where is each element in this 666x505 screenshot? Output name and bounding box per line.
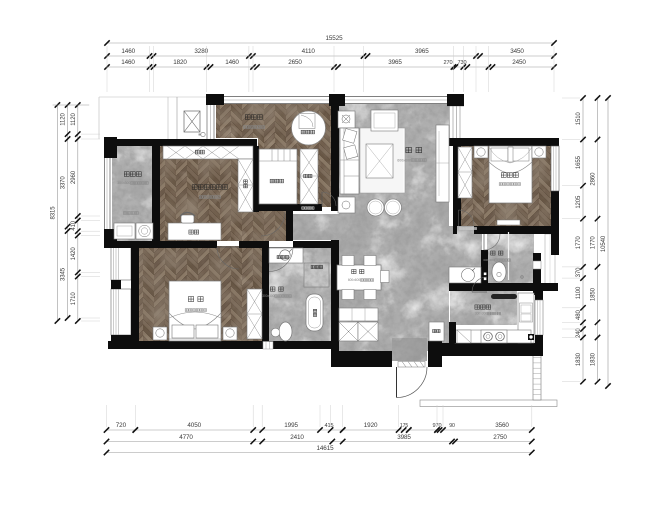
- svg-text:15525: 15525: [325, 35, 343, 42]
- svg-text:1460: 1460: [225, 59, 239, 66]
- svg-text:4770: 4770: [179, 434, 193, 441]
- svg-text:480: 480: [576, 309, 582, 319]
- svg-text:2960: 2960: [71, 170, 77, 184]
- svg-text:1120: 1120: [71, 112, 77, 125]
- svg-text:1995: 1995: [284, 422, 298, 429]
- svg-text:1460: 1460: [121, 59, 135, 66]
- svg-text:1770: 1770: [591, 236, 597, 250]
- svg-text:300x300: 300x300: [483, 258, 495, 262]
- svg-text:1100: 1100: [576, 286, 582, 299]
- svg-text:415: 415: [324, 423, 333, 429]
- svg-text:90: 90: [449, 423, 455, 429]
- svg-text:1830: 1830: [576, 352, 582, 366]
- svg-text:270: 270: [443, 60, 452, 66]
- svg-text:3985: 3985: [397, 434, 411, 441]
- svg-text:4110: 4110: [302, 48, 316, 55]
- svg-text:3965: 3965: [388, 59, 402, 66]
- svg-text:1920: 1920: [364, 422, 378, 429]
- svg-text:600x600: 600x600: [397, 158, 411, 162]
- svg-text:300x300: 300x300: [117, 181, 130, 185]
- svg-text:1655: 1655: [576, 155, 582, 169]
- svg-text:730: 730: [457, 60, 466, 66]
- svg-text:2410: 2410: [290, 434, 304, 441]
- svg-text:1460: 1460: [121, 48, 135, 55]
- svg-text:2860: 2860: [591, 172, 597, 186]
- svg-text:3370: 3370: [61, 176, 67, 190]
- svg-text:2750: 2750: [493, 434, 507, 441]
- svg-text:8315: 8315: [50, 206, 56, 220]
- svg-text:1770: 1770: [576, 236, 582, 250]
- svg-text:1510: 1510: [576, 112, 582, 126]
- svg-text:14615: 14615: [316, 445, 334, 452]
- svg-text:2650: 2650: [288, 59, 302, 66]
- svg-text:370: 370: [576, 267, 582, 277]
- svg-text:1420: 1420: [71, 247, 77, 261]
- svg-text:600x600: 600x600: [348, 278, 360, 282]
- svg-text:10540: 10540: [601, 235, 607, 252]
- svg-text:175: 175: [400, 423, 409, 429]
- svg-text:3560: 3560: [495, 422, 509, 429]
- svg-text:3965: 3965: [415, 48, 429, 55]
- svg-text:300x300: 300x300: [475, 312, 487, 316]
- svg-text:2450: 2450: [512, 59, 526, 66]
- svg-text:1850: 1850: [591, 287, 597, 301]
- svg-text:3345: 3345: [61, 267, 67, 281]
- svg-text:720: 720: [116, 422, 127, 429]
- svg-text:300x300: 300x300: [262, 294, 274, 298]
- svg-text:1120: 1120: [61, 112, 67, 125]
- svg-text:410: 410: [71, 220, 77, 230]
- svg-text:1710: 1710: [71, 292, 77, 306]
- svg-text:4050: 4050: [187, 422, 201, 429]
- svg-text:3450: 3450: [510, 48, 524, 55]
- svg-text:1205: 1205: [576, 195, 582, 209]
- svg-text:1830: 1830: [591, 352, 597, 366]
- svg-text:1820: 1820: [173, 59, 187, 66]
